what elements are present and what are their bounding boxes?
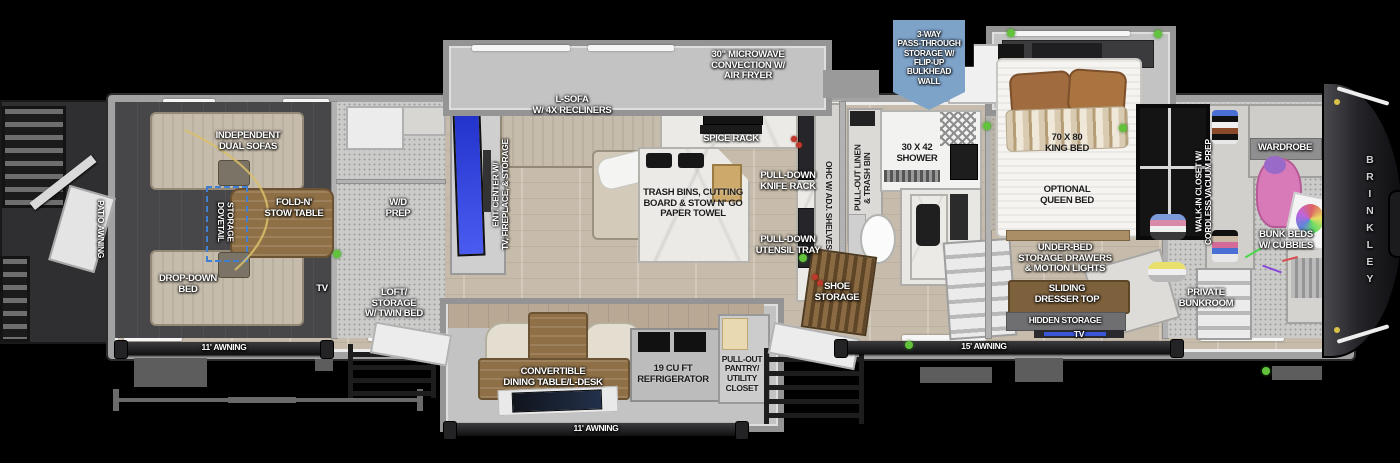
- decor-dot: [817, 280, 823, 286]
- storage-callout: [893, 20, 965, 110]
- wd-corner-shelf: [402, 106, 446, 136]
- indicator-dot: [1007, 29, 1015, 37]
- island-trash-lid: [646, 153, 672, 168]
- hidden-storage-bar: [1006, 312, 1126, 331]
- washer-dryer: [346, 106, 404, 150]
- mirror-door: [950, 194, 968, 240]
- shower-mat: [884, 170, 940, 182]
- decor-dot: [812, 274, 818, 280]
- clearance-light: [1334, 327, 1340, 333]
- indicator-dot: [333, 250, 341, 258]
- indicator-dot: [983, 122, 991, 130]
- legend-chip: [134, 358, 207, 387]
- cable-arc: [110, 100, 350, 300]
- tv-screen: [452, 112, 485, 257]
- legend-chip: [315, 359, 333, 371]
- bedroom-tv-screen: [1044, 332, 1106, 336]
- slide-window: [588, 45, 674, 51]
- slide-window: [1012, 31, 1130, 36]
- rv-floorplan: 3-WAY PASS-THROUGH STORAGE W/ FLIP-UP BU…: [0, 0, 1400, 463]
- bunkroom-steps: [1196, 268, 1252, 340]
- dimension-mid: [228, 397, 296, 403]
- decor-dot: [791, 136, 797, 142]
- shower-glass-hatch: [940, 112, 976, 146]
- spice-rack-bar: [700, 125, 762, 134]
- island-crate: [712, 164, 742, 202]
- bed-foot-rail: [1006, 230, 1130, 241]
- dimension-cap: [113, 389, 119, 411]
- folded-clothes: [1150, 214, 1186, 240]
- indicator-dot: [905, 341, 913, 349]
- bath-roof-chunk: [823, 70, 879, 98]
- bed-runner: [1005, 106, 1128, 152]
- fridge-top-panel: [638, 332, 670, 352]
- pantry-basket: [722, 318, 748, 350]
- clothes-stack: [1212, 230, 1238, 262]
- bunk-dresser-slats: [1291, 258, 1325, 298]
- beanbag-top: [1264, 156, 1286, 174]
- indicator-dot: [1262, 367, 1270, 375]
- slide-window: [472, 45, 570, 51]
- indicator-dot: [1119, 124, 1127, 132]
- fridge-top-panel: [674, 332, 706, 352]
- clearance-light: [1334, 99, 1340, 105]
- linen-hamper: [850, 111, 875, 126]
- dinette-awning-bar: [447, 423, 745, 436]
- rear-wheel-nub: [1388, 190, 1400, 258]
- patio-gate: [0, 256, 30, 342]
- legend-chip: [920, 367, 992, 383]
- main-awning-bar: [838, 341, 1180, 354]
- legend-chip: [1272, 366, 1322, 380]
- shower-unit: [950, 144, 978, 180]
- shoe-storage-rack: [801, 248, 877, 336]
- sliding-dresser: [1008, 280, 1130, 314]
- garage-awning-bar: [118, 342, 330, 355]
- folded-clothes: [1148, 262, 1186, 282]
- decor-dot: [796, 142, 802, 148]
- island-trash-lid: [678, 153, 704, 168]
- living-slideout: [443, 40, 832, 116]
- indicator-dot: [799, 254, 807, 262]
- indicator-dot: [1154, 30, 1162, 38]
- vanity-sink: [916, 204, 940, 246]
- fireplace: [483, 150, 491, 212]
- loft-divider: [337, 180, 445, 183]
- legend-chip: [1015, 358, 1063, 382]
- wardrobe-bar: [1250, 138, 1322, 160]
- clothes-stack: [1212, 110, 1238, 144]
- laptop: [512, 389, 603, 412]
